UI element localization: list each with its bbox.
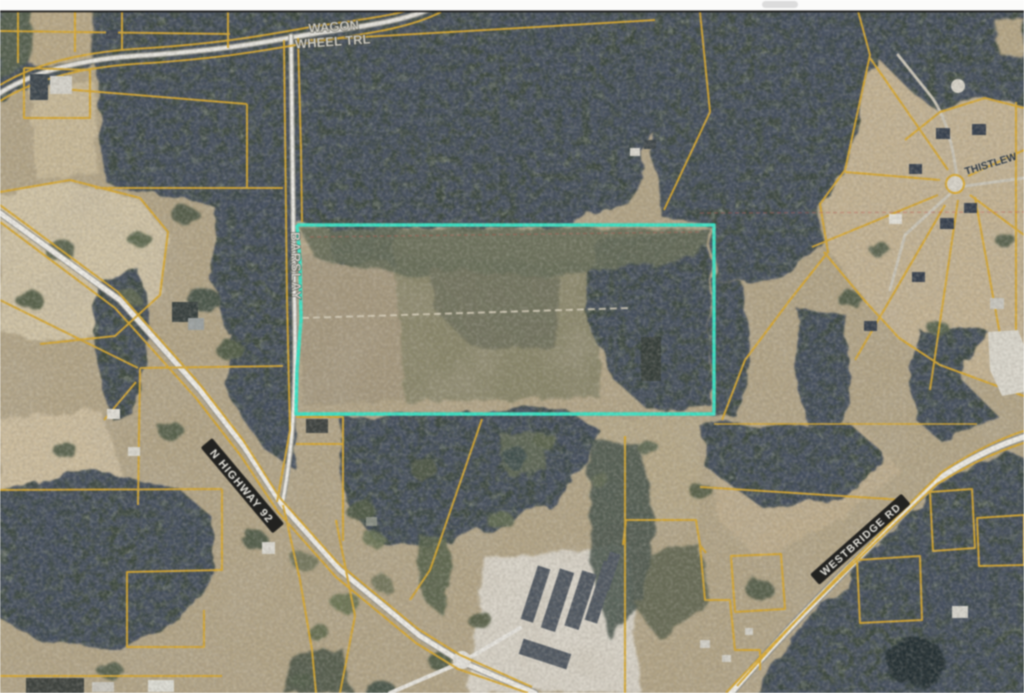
svg-text:BARSLAY: BARSLAY xyxy=(288,232,304,301)
